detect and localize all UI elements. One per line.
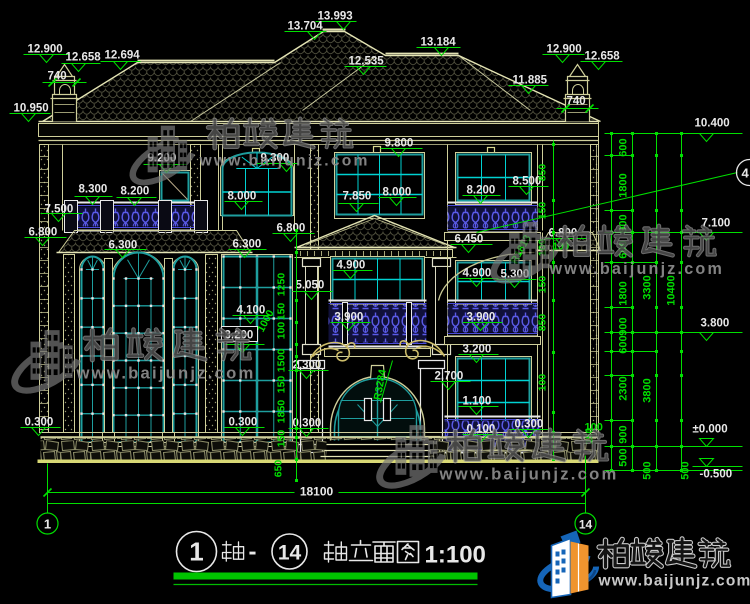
svg-text:10400: 10400 bbox=[666, 275, 678, 306]
svg-text:600: 600 bbox=[618, 138, 630, 156]
svg-text:12.658: 12.658 bbox=[585, 51, 621, 63]
svg-text:150: 150 bbox=[276, 430, 288, 448]
svg-text:1800: 1800 bbox=[618, 281, 630, 305]
svg-text:3.800: 3.800 bbox=[701, 318, 730, 330]
svg-text:850: 850 bbox=[537, 314, 549, 332]
svg-text:-: - bbox=[249, 539, 257, 566]
svg-text:8.000: 8.000 bbox=[228, 191, 257, 203]
svg-text:600: 600 bbox=[618, 335, 630, 353]
svg-text:www.baijunjz.com: www.baijunjz.com bbox=[549, 260, 725, 278]
svg-text:12.535: 12.535 bbox=[349, 56, 385, 68]
svg-text:12.900: 12.900 bbox=[547, 44, 582, 56]
svg-text:100: 100 bbox=[537, 374, 549, 392]
svg-text:10.950: 10.950 bbox=[14, 103, 49, 115]
svg-text:www.baijunjz.com: www.baijunjz.com bbox=[439, 464, 619, 483]
svg-text:1: 1 bbox=[44, 517, 51, 532]
svg-text:5.050: 5.050 bbox=[296, 280, 325, 292]
svg-text:1250: 1250 bbox=[276, 273, 288, 297]
svg-text:7.850: 7.850 bbox=[343, 191, 372, 203]
svg-text:12.900: 12.900 bbox=[28, 44, 63, 56]
svg-text:3.200: 3.200 bbox=[463, 344, 492, 356]
svg-text:500: 500 bbox=[642, 461, 654, 479]
svg-text:4: 4 bbox=[742, 166, 750, 181]
svg-text:1800: 1800 bbox=[618, 173, 630, 197]
svg-text:1: 1 bbox=[189, 537, 203, 567]
svg-text:2.700: 2.700 bbox=[435, 371, 464, 383]
svg-text:1500: 1500 bbox=[276, 349, 288, 373]
svg-text:3800: 3800 bbox=[642, 378, 654, 402]
svg-text:9.800: 9.800 bbox=[385, 138, 414, 150]
svg-text:1:100: 1:100 bbox=[425, 542, 486, 569]
svg-text:±0.000: ±0.000 bbox=[693, 424, 728, 436]
svg-text:6.450: 6.450 bbox=[455, 234, 484, 246]
svg-text:3300: 3300 bbox=[642, 275, 654, 299]
svg-text:8.300: 8.300 bbox=[79, 184, 108, 196]
svg-text:8.000: 8.000 bbox=[383, 187, 412, 199]
svg-text:14: 14 bbox=[579, 518, 593, 532]
svg-text:0.300: 0.300 bbox=[515, 419, 544, 431]
svg-text:4.100: 4.100 bbox=[237, 305, 266, 317]
svg-text:900: 900 bbox=[618, 425, 630, 443]
svg-text:6.800: 6.800 bbox=[29, 227, 58, 239]
svg-text:13.704: 13.704 bbox=[288, 21, 324, 33]
svg-text:100: 100 bbox=[276, 322, 288, 340]
svg-text:www.baijunjz.com: www.baijunjz.com bbox=[76, 363, 256, 382]
svg-text:4.900: 4.900 bbox=[463, 268, 492, 280]
svg-text:740: 740 bbox=[48, 71, 67, 83]
svg-text:1850: 1850 bbox=[276, 400, 288, 424]
svg-text:4.900: 4.900 bbox=[337, 260, 366, 272]
svg-text:150: 150 bbox=[537, 202, 549, 220]
svg-text:150: 150 bbox=[276, 376, 288, 394]
svg-text:10.400: 10.400 bbox=[695, 118, 730, 130]
svg-text:3.900: 3.900 bbox=[467, 312, 496, 324]
svg-text:6.300: 6.300 bbox=[233, 239, 262, 251]
svg-text:13.184: 13.184 bbox=[421, 37, 457, 49]
svg-text:900: 900 bbox=[618, 317, 630, 335]
svg-text:150: 150 bbox=[537, 276, 549, 294]
svg-text:2300: 2300 bbox=[618, 376, 630, 400]
svg-text:650: 650 bbox=[273, 460, 285, 478]
svg-text:12.658: 12.658 bbox=[66, 52, 102, 64]
svg-text:www.baijunjz.com: www.baijunjz.com bbox=[199, 152, 370, 169]
svg-text:0.300: 0.300 bbox=[229, 417, 258, 429]
svg-text:8.200: 8.200 bbox=[121, 186, 150, 198]
svg-text:150: 150 bbox=[276, 303, 288, 321]
svg-text:12.694: 12.694 bbox=[105, 50, 141, 62]
svg-text:6.800: 6.800 bbox=[277, 223, 306, 235]
svg-text:11.885: 11.885 bbox=[513, 75, 548, 87]
svg-text:500: 500 bbox=[618, 448, 630, 466]
svg-text:www.baijunjz.com: www.baijunjz.com bbox=[598, 573, 750, 590]
svg-text:3.900: 3.900 bbox=[335, 312, 364, 324]
svg-text:0.300: 0.300 bbox=[25, 417, 54, 429]
svg-text:13.993: 13.993 bbox=[318, 11, 353, 23]
svg-text:14: 14 bbox=[278, 542, 302, 565]
svg-text:8.200: 8.200 bbox=[467, 185, 496, 197]
svg-text:850: 850 bbox=[537, 164, 549, 182]
svg-text:500: 500 bbox=[680, 461, 692, 479]
svg-text:18100: 18100 bbox=[300, 485, 334, 499]
svg-text:-0.500: -0.500 bbox=[700, 469, 733, 481]
svg-text:1.100: 1.100 bbox=[463, 396, 492, 408]
